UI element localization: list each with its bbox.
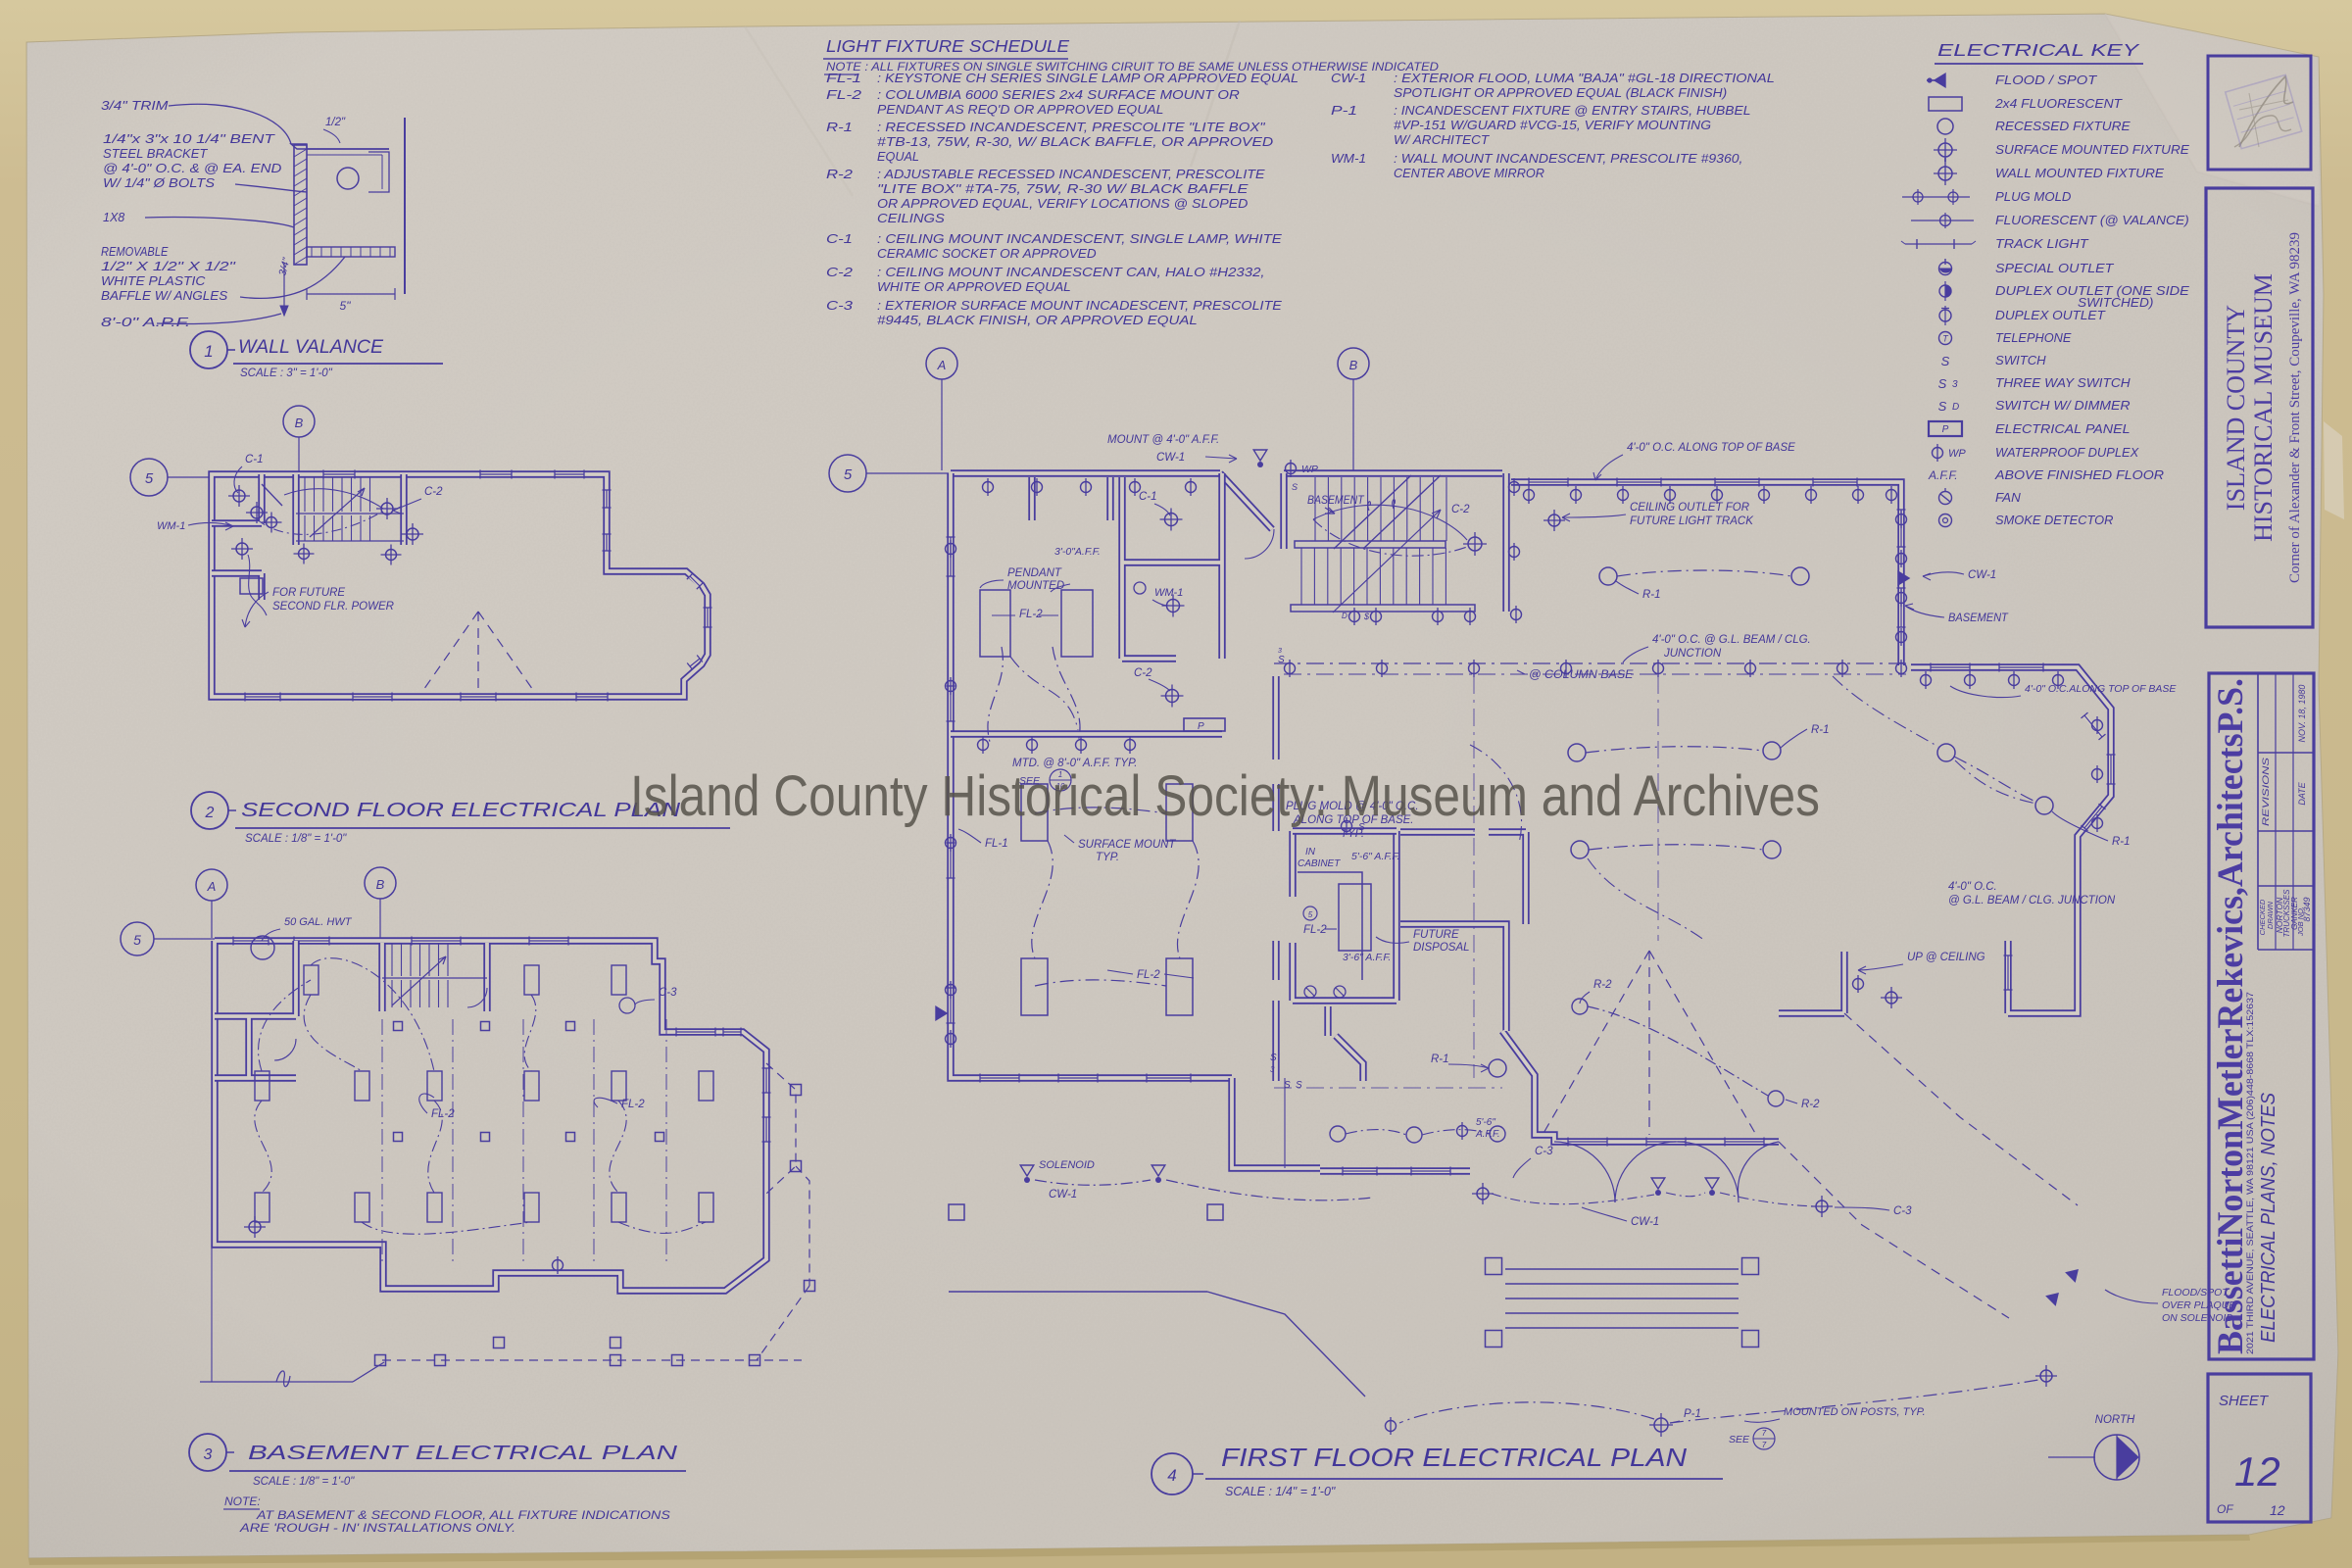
svg-text:D: D — [1952, 402, 1959, 413]
svg-text:: INCANDESCENT FIXTURE @ ENTRY: : INCANDESCENT FIXTURE @ ENTRY STAIRS, H… — [1394, 104, 1751, 118]
svg-text:: ADJUSTABLE RECESSED INCANDES: : ADJUSTABLE RECESSED INCANDESCENT, PRES… — [877, 168, 1265, 181]
svg-text:C-2: C-2 — [1134, 667, 1152, 679]
svg-text:C-2: C-2 — [826, 266, 853, 279]
svg-text:@ 4'-0" O.C. & @ EA. END: @ 4'-0" O.C. & @ EA. END — [103, 162, 281, 175]
svg-text:OF: OF — [2217, 1502, 2233, 1516]
svg-text:R-1: R-1 — [2112, 836, 2131, 848]
svg-text:HISTORICAL MUSEUM: HISTORICAL MUSEUM — [2249, 273, 2278, 542]
svg-text:#VP-151 W/GUARD #VCG-15, VERIF: #VP-151 W/GUARD #VCG-15, VERIFY MOUNTING — [1394, 119, 1711, 132]
svg-text:2: 2 — [205, 805, 215, 821]
svg-text:12: 12 — [2270, 1502, 2285, 1518]
svg-text:3/4" TRIM: 3/4" TRIM — [101, 99, 169, 113]
svg-text:WM-1: WM-1 — [157, 520, 185, 532]
svg-text:STEEL BRACKET: STEEL BRACKET — [103, 147, 209, 161]
svg-text:DATE: DATE — [2297, 781, 2307, 805]
svg-text:TRACK LIGHT: TRACK LIGHT — [1995, 237, 2089, 251]
svg-text:5": 5" — [340, 299, 352, 313]
svg-text:FOR FUTURE: FOR FUTURE — [272, 587, 345, 599]
svg-text:SMOKE DETECTOR: SMOKE DETECTOR — [1995, 514, 2113, 527]
svg-text:SPECIAL OUTLET: SPECIAL OUTLET — [1995, 262, 2115, 275]
svg-text:P: P — [1942, 424, 1949, 435]
svg-text:W/ 1/4" Ø BOLTS: W/ 1/4" Ø BOLTS — [103, 176, 216, 190]
svg-text:4: 4 — [1167, 1466, 1176, 1485]
svg-text:FAN: FAN — [1995, 491, 2022, 505]
svg-text:7: 7 — [1762, 1441, 1767, 1449]
svg-text:C-3: C-3 — [659, 987, 677, 999]
svg-text:TYP.: TYP. — [1096, 852, 1119, 863]
svg-text:WM-1: WM-1 — [1154, 587, 1183, 599]
svg-text:FL-2: FL-2 — [1303, 924, 1327, 936]
svg-text:OR APPROVED EQUAL, VERIFY LOCA: OR APPROVED EQUAL, VERIFY LOCATIONS @ SL… — [877, 197, 1248, 211]
svg-text:WALL MOUNTED FIXTURE: WALL MOUNTED FIXTURE — [1995, 167, 2165, 180]
svg-text:PLUG MOLD: PLUG MOLD — [1995, 190, 2071, 204]
svg-text:RECESSED FIXTURE: RECESSED FIXTURE — [1995, 120, 2131, 133]
svg-text:ELECTRICAL KEY: ELECTRICAL KEY — [1937, 40, 2140, 60]
svg-text:C-3: C-3 — [826, 299, 853, 313]
svg-text:S: S — [1270, 1053, 1277, 1063]
svg-text:C-2: C-2 — [424, 486, 443, 498]
svg-text:1/4"x 3"x 10 1/4" BENT: 1/4"x 3"x 10 1/4" BENT — [103, 132, 276, 146]
svg-text:"LITE BOX" #TA-75, 75W, R-30 W: "LITE BOX" #TA-75, 75W, R-30 W/ BLACK BA… — [877, 182, 1249, 196]
svg-text:ELECTRICAL PLANS, NOTES: ELECTRICAL PLANS, NOTES — [2258, 1092, 2279, 1343]
svg-text:: WALL MOUNT INCANDESCENT, PRE: : WALL MOUNT INCANDESCENT, PRESCOLITE #9… — [1394, 152, 1742, 166]
svg-text:C-3: C-3 — [1893, 1205, 1912, 1217]
svg-text:CW-1: CW-1 — [1331, 72, 1366, 85]
svg-text:1X8: 1X8 — [103, 211, 124, 224]
svg-text:A.F.F.: A.F.F. — [1475, 1129, 1500, 1140]
svg-text:5: 5 — [133, 932, 141, 948]
svg-text:SURFACE MOUNT: SURFACE MOUNT — [1078, 839, 1176, 851]
svg-text:EQUAL: EQUAL — [877, 150, 919, 164]
svg-text:FIRST FLOOR ELECTRICAL PLA: FIRST FLOOR ELECTRICAL PLAN — [1221, 1443, 1687, 1472]
svg-text:FLOOD / SPOT: FLOOD / SPOT — [1995, 73, 2098, 87]
svg-text:C-1: C-1 — [826, 232, 853, 246]
svg-text:B: B — [1349, 358, 1358, 372]
svg-text:C-3: C-3 — [1535, 1146, 1553, 1157]
svg-text:3: 3 — [204, 1446, 213, 1463]
svg-text:2021 THIRD AVENUE, SEATTLE, WA: 2021 THIRD AVENUE, SEATTLE, WA 98121 USA… — [2245, 992, 2256, 1354]
svg-text:FL-2: FL-2 — [621, 1099, 645, 1110]
svg-text:W/ ARCHITECT: W/ ARCHITECT — [1394, 133, 1491, 147]
svg-text:SURFACE MOUNTED FIXTURE: SURFACE MOUNTED FIXTURE — [1995, 143, 2190, 157]
svg-text:B: B — [376, 877, 385, 892]
svg-text:UP @ CEILING: UP @ CEILING — [1907, 952, 1985, 963]
svg-text:WHITE OR APPROVED EQUAL: WHITE OR APPROVED EQUAL — [877, 280, 1071, 294]
svg-text:3: 3 — [1278, 648, 1282, 655]
svg-text:@ COLUMN BASE: @ COLUMN BASE — [1529, 669, 1634, 681]
svg-text:WHITE PLASTIC: WHITE PLASTIC — [101, 274, 206, 288]
svg-text:SCALE : 3" = 1'-0": SCALE : 3" = 1'-0" — [240, 367, 333, 379]
svg-text:SWITCHED): SWITCHED) — [2078, 296, 2153, 310]
svg-text:12: 12 — [2234, 1448, 2280, 1494]
svg-text:WALL VALANCE: WALL VALANCE — [238, 337, 383, 358]
svg-text:THREE WAY SWITCH: THREE WAY SWITCH — [1995, 376, 2131, 390]
svg-text:5: 5 — [1308, 910, 1313, 919]
svg-text:SEE: SEE — [1729, 1434, 1750, 1445]
svg-text:LIGHT FIXTURE SCHEDULE: LIGHT FIXTURE SCHEDULE — [826, 36, 1069, 56]
svg-text:BASEMENT: BASEMENT — [1307, 495, 1364, 507]
svg-text:MOUNT @ 4'-0" A.F.F.: MOUNT @ 4'-0" A.F.F. — [1107, 434, 1219, 446]
svg-text:FUTURE LIGHT TRACK: FUTURE LIGHT TRACK — [1630, 515, 1754, 527]
svg-text:ARE 'ROUGH - IN' INSTALLATION: ARE 'ROUGH - IN' INSTALLATIONS ONLY. — [239, 1523, 515, 1535]
svg-text:FL-1: FL-1 — [826, 72, 861, 85]
svg-text:AT BASEMENT & SECOND FLOOR,: AT BASEMENT & SECOND FLOOR, ALL FIXTURE … — [256, 1510, 670, 1522]
svg-text:D: D — [1342, 612, 1347, 620]
svg-text:CW-1: CW-1 — [1049, 1189, 1077, 1200]
svg-text:4'-0" O.C. @ G.L. BEAM / CLG.: 4'-0" O.C. @ G.L. BEAM / CLG. — [1652, 634, 1811, 646]
svg-text:S: S — [1938, 399, 1947, 414]
svg-text:S: S — [1941, 354, 1950, 368]
svg-text:#TB-13, 75W, R-30, W/ BLACK BA: #TB-13, 75W, R-30, W/ BLACK BAFFLE, OR A… — [877, 135, 1273, 149]
svg-text:SECOND FLR. POWER: SECOND FLR. POWER — [272, 601, 394, 612]
svg-text:CW-1: CW-1 — [1631, 1216, 1659, 1228]
svg-text:5: 5 — [145, 470, 154, 487]
svg-text:$: $ — [1363, 612, 1370, 621]
svg-text:S: S — [1292, 482, 1298, 492]
svg-text:7: 7 — [1762, 1429, 1767, 1438]
svg-text:NORTH: NORTH — [2095, 1414, 2135, 1426]
svg-text:87349: 87349 — [2302, 897, 2312, 921]
svg-text:NOTE:: NOTE: — [224, 1494, 261, 1508]
svg-text:SPOTLIGHT OR APPROVED EQUAL (B: SPOTLIGHT OR APPROVED EQUAL (BLACK FINIS… — [1394, 86, 1727, 100]
svg-text:CEILING OUTLET FOR: CEILING OUTLET FOR — [1630, 502, 1749, 514]
svg-text:3: 3 — [1952, 379, 1958, 390]
svg-text:: EXTERIOR SURFACE MOUNT INCAD: : EXTERIOR SURFACE MOUNT INCADESCENT, PR… — [877, 299, 1283, 313]
svg-text:ELECTRICAL PANEL: ELECTRICAL PANEL — [1995, 422, 2131, 436]
svg-text:A: A — [937, 358, 947, 372]
svg-text:WP: WP — [1948, 448, 1966, 460]
svg-text:5: 5 — [844, 466, 853, 483]
svg-text:TELEPHONE: TELEPHONE — [1995, 331, 2072, 345]
svg-text:SCALE : 1/8" = 1'-0": SCALE : 1/8" = 1'-0" — [245, 833, 347, 845]
svg-text:JUNCTION: JUNCTION — [1663, 648, 1722, 660]
svg-text:C-2: C-2 — [1451, 504, 1470, 515]
svg-text:R-2: R-2 — [826, 168, 853, 181]
svg-text:4'-0" O.C.: 4'-0" O.C. — [1948, 881, 1997, 893]
svg-text:WM-1: WM-1 — [1331, 152, 1366, 166]
svg-text:SOLENOID: SOLENOID — [1039, 1159, 1095, 1171]
svg-text:: EXTERIOR FLOOD, LUMA "BAJA": : EXTERIOR FLOOD, LUMA "BAJA" #GL-18 DIR… — [1394, 72, 1775, 85]
svg-text:FL-2: FL-2 — [1019, 609, 1043, 620]
svg-text:R-1: R-1 — [826, 121, 853, 134]
svg-text:5'-6": 5'-6" — [1476, 1117, 1495, 1128]
svg-text:3'-0"A.F.F.: 3'-0"A.F.F. — [1054, 546, 1101, 558]
svg-text:5'-6" A.F.F.: 5'-6" A.F.F. — [1351, 851, 1399, 862]
svg-text:IN: IN — [1305, 847, 1316, 857]
svg-text:3: 3 — [1270, 1065, 1275, 1074]
svg-text:CW-1: CW-1 — [1156, 452, 1185, 464]
svg-text:R-2: R-2 — [1593, 979, 1612, 991]
svg-text:R-1: R-1 — [1811, 724, 1830, 736]
svg-text:: KEYSTONE CH SERIES SINGLE LA: : KEYSTONE CH SERIES SINGLE LAMP OR APPR… — [877, 72, 1298, 85]
svg-text:R-1: R-1 — [1642, 589, 1661, 601]
svg-text:ABOVE FINISHED FLOOR: ABOVE FINISHED FLOOR — [1994, 468, 2164, 482]
svg-text:ISLAND COUNTY: ISLAND COUNTY — [2222, 305, 2250, 511]
svg-text:R-1: R-1 — [1431, 1053, 1449, 1065]
svg-text:NOV. 18, 1980: NOV. 18, 1980 — [2297, 685, 2307, 743]
svg-text:1: 1 — [204, 342, 213, 361]
svg-text:A.F.F.: A.F.F. — [1928, 468, 1958, 482]
svg-text:CW-1: CW-1 — [1968, 569, 1996, 581]
svg-text:CENTER ABOVE MIRROR: CENTER ABOVE MIRROR — [1394, 167, 1544, 180]
svg-text:8'-0" A.P.F.: 8'-0" A.P.F. — [101, 316, 190, 329]
svg-text:FUTURE: FUTURE — [1413, 929, 1459, 941]
svg-text:PENDANT: PENDANT — [1007, 567, 1062, 579]
svg-text:A: A — [207, 879, 217, 894]
svg-text:4'-0" O.C. ALONG TOP OF BAS: 4'-0" O.C. ALONG TOP OF BASE — [1627, 442, 1795, 454]
svg-text:DISPOSAL: DISPOSAL — [1413, 942, 1470, 954]
svg-text:MOUNTED: MOUNTED — [1007, 580, 1064, 592]
svg-text:FL-2: FL-2 — [431, 1108, 455, 1120]
svg-text:1/2": 1/2" — [325, 117, 346, 128]
svg-text:S: S — [1938, 376, 1947, 391]
svg-text:CERAMIC SOCKET OR APPROVED: CERAMIC SOCKET OR APPROVED — [877, 247, 1097, 261]
svg-text:SWITCH W/ DIMMER: SWITCH W/ DIMMER — [1995, 399, 2131, 413]
svg-text:WATERPROOF DUPLEX: WATERPROOF DUPLEX — [1995, 446, 2139, 460]
svg-text:3'-6" A.F.F.: 3'-6" A.F.F. — [1343, 952, 1391, 963]
svg-text:FLUORESCENT (@ VALANCE): FLUORESCENT (@ VALANCE) — [1995, 214, 2189, 227]
svg-text:P: P — [1198, 721, 1204, 732]
svg-text:Corner of Alexander & Front St: Corner of Alexander & Front Street, Coup… — [2287, 232, 2303, 583]
svg-text:BASEMENT: BASEMENT — [1948, 612, 2009, 624]
svg-text:SWITCH: SWITCH — [1995, 354, 2047, 367]
svg-text:B: B — [295, 416, 304, 430]
svg-text:SHEET: SHEET — [2219, 1393, 2270, 1409]
svg-text:FL-2: FL-2 — [826, 88, 861, 102]
svg-text:R-2: R-2 — [1801, 1099, 1820, 1110]
svg-text:P-1: P-1 — [1331, 104, 1357, 118]
svg-text:DUPLEX OUTLET: DUPLEX OUTLET — [1995, 309, 2106, 322]
svg-text:BAFFLE W/ ANGLES: BAFFLE W/ ANGLES — [101, 289, 228, 303]
svg-text:DRAWN: DRAWN — [2266, 901, 2275, 929]
svg-text:MOUNTED ON POSTS, TYP.: MOUNTED ON POSTS, TYP. — [1784, 1406, 1926, 1418]
svg-text:4'-0" O.C.ALONG TOP OF BASE: 4'-0" O.C.ALONG TOP OF BASE — [2025, 683, 2177, 695]
svg-text:CABINET: CABINET — [1298, 858, 1341, 869]
svg-text:BASEMENT ELECTRICAL PLAN: BASEMENT ELECTRICAL PLAN — [248, 1443, 678, 1464]
svg-text:REMOVABLE: REMOVABLE — [101, 245, 169, 259]
svg-text:PENDANT AS REQ'D OR APPROVED E: PENDANT AS REQ'D OR APPROVED EQUAL — [877, 103, 1163, 117]
svg-text:50 GAL. HWT: 50 GAL. HWT — [284, 916, 353, 928]
svg-text:#9445, BLACK FINISH, OR APPROV: #9445, BLACK FINISH, OR APPROVED EQUAL — [877, 314, 1198, 327]
svg-text:C-1: C-1 — [1139, 491, 1157, 503]
svg-text:2x4 FLUORESCENT: 2x4 FLUORESCENT — [1994, 97, 2124, 111]
svg-text:FL-1: FL-1 — [985, 838, 1008, 850]
svg-text:SCALE : 1/8" = 1'-0": SCALE : 1/8" = 1'-0" — [253, 1476, 355, 1488]
svg-text:Island County Historical Socie: Island County Historical Society: Museum… — [630, 764, 1820, 828]
svg-text:: COLUMBIA 6000 SERIES 2x4 SUR: : COLUMBIA 6000 SERIES 2x4 SURFACE MOUNT… — [877, 88, 1240, 102]
svg-text:: CEILING MOUNT INCANDESCENT C: : CEILING MOUNT INCANDESCENT CAN, HALO #… — [877, 266, 1265, 279]
svg-text:1/2" X 1/2" X 1/2": 1/2" X 1/2" X 1/2" — [101, 260, 236, 273]
svg-text:SECOND FLOOR ELECTRICAL PLA: SECOND FLOOR ELECTRICAL PLAN — [241, 800, 681, 821]
svg-text:: CEILING MOUNT INCANDESCENT,: : CEILING MOUNT INCANDESCENT, SINGLE LAM… — [877, 232, 1283, 246]
svg-text:REVISIONS: REVISIONS — [2261, 757, 2272, 826]
svg-text:FL-2: FL-2 — [1137, 969, 1160, 981]
svg-text:P-1: P-1 — [1684, 1408, 1701, 1420]
svg-text:S: S — [1296, 1080, 1302, 1091]
svg-text:WP: WP — [1301, 464, 1318, 475]
svg-text:C-1: C-1 — [245, 454, 264, 465]
svg-text:CEILINGS: CEILINGS — [877, 212, 946, 225]
svg-text:: RECESSED INCANDESCENT, PRESC: : RECESSED INCANDESCENT, PRESCOLITE "LIT… — [877, 121, 1265, 134]
svg-text:SCALE : 1/4" = 1'-0": SCALE : 1/4" = 1'-0" — [1225, 1485, 1336, 1498]
svg-text:@ G.L. BEAM / CLG. JUNCTION: @ G.L. BEAM / CLG. JUNCTION — [1948, 895, 2116, 906]
